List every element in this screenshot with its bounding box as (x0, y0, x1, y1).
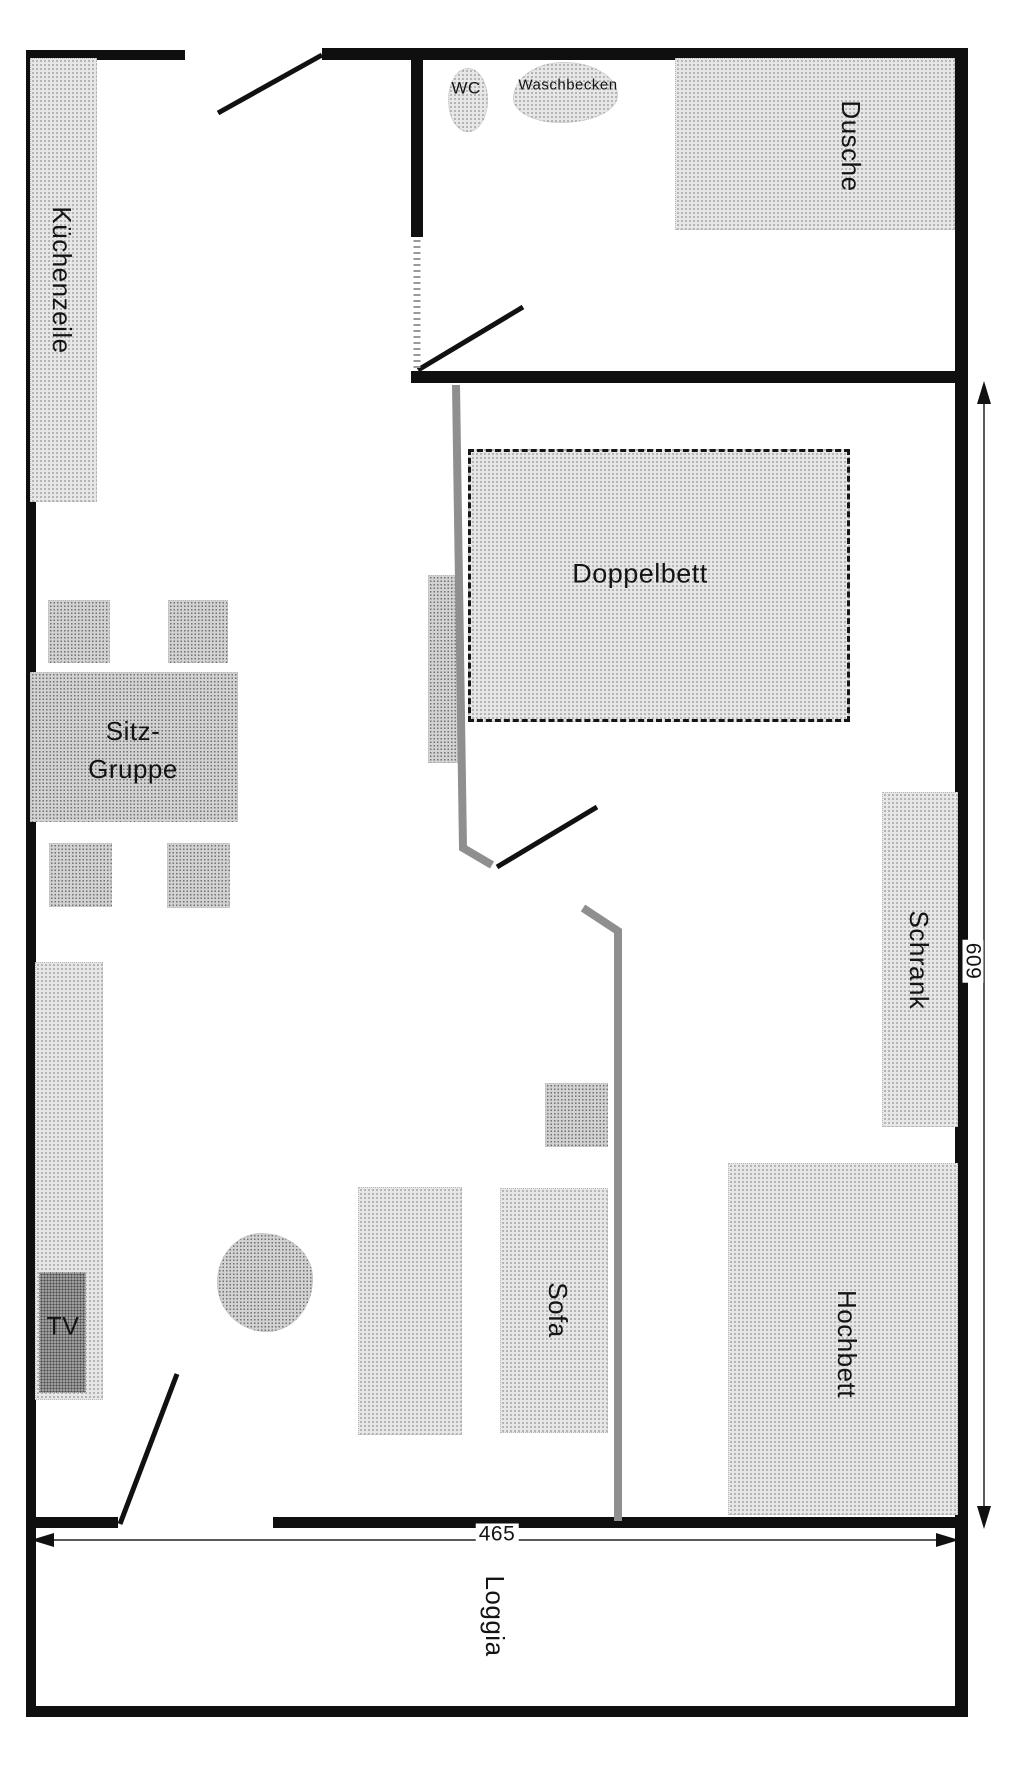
tv-label: TV (47, 1315, 80, 1340)
plan-lines (0, 0, 1020, 1780)
door-swing-entry-top (218, 55, 322, 113)
seating-group-label-line1: Sitz- (106, 718, 161, 744)
loggia-label: Loggia (482, 1575, 508, 1656)
door-swing-bathroom (418, 307, 523, 370)
arrowhead-up-icon (977, 381, 991, 404)
dimension-value-vertical: 609 (963, 940, 984, 983)
loft-bed-label: Hochbett (834, 1290, 860, 1398)
shower-label: Dusche (838, 100, 864, 191)
sofa-label: Sofa (545, 1282, 571, 1338)
seating-group-label-line2: Gruppe (88, 756, 178, 782)
toilet-label: WC (451, 80, 480, 97)
dimension-value-horizontal: 465 (476, 1524, 519, 1545)
partition-line-lower (583, 908, 618, 1521)
door-swing-bedroom (497, 807, 597, 867)
double-bed-label: Doppelbett (572, 561, 708, 588)
partition-line-upper (456, 385, 492, 865)
floor-plan: Küchenzeile WC Waschbecken Dusche Doppel… (0, 0, 1020, 1780)
arrowhead-right-icon (936, 1533, 959, 1547)
arrowhead-down-icon (977, 1506, 991, 1529)
wardrobe-label: Schrank (906, 911, 932, 1010)
arrowhead-left-icon (31, 1533, 54, 1547)
kitchen-label: Küchenzeile (49, 206, 75, 353)
washbasin-label: Waschbecken (518, 78, 617, 93)
door-swing-loggia (120, 1374, 177, 1524)
